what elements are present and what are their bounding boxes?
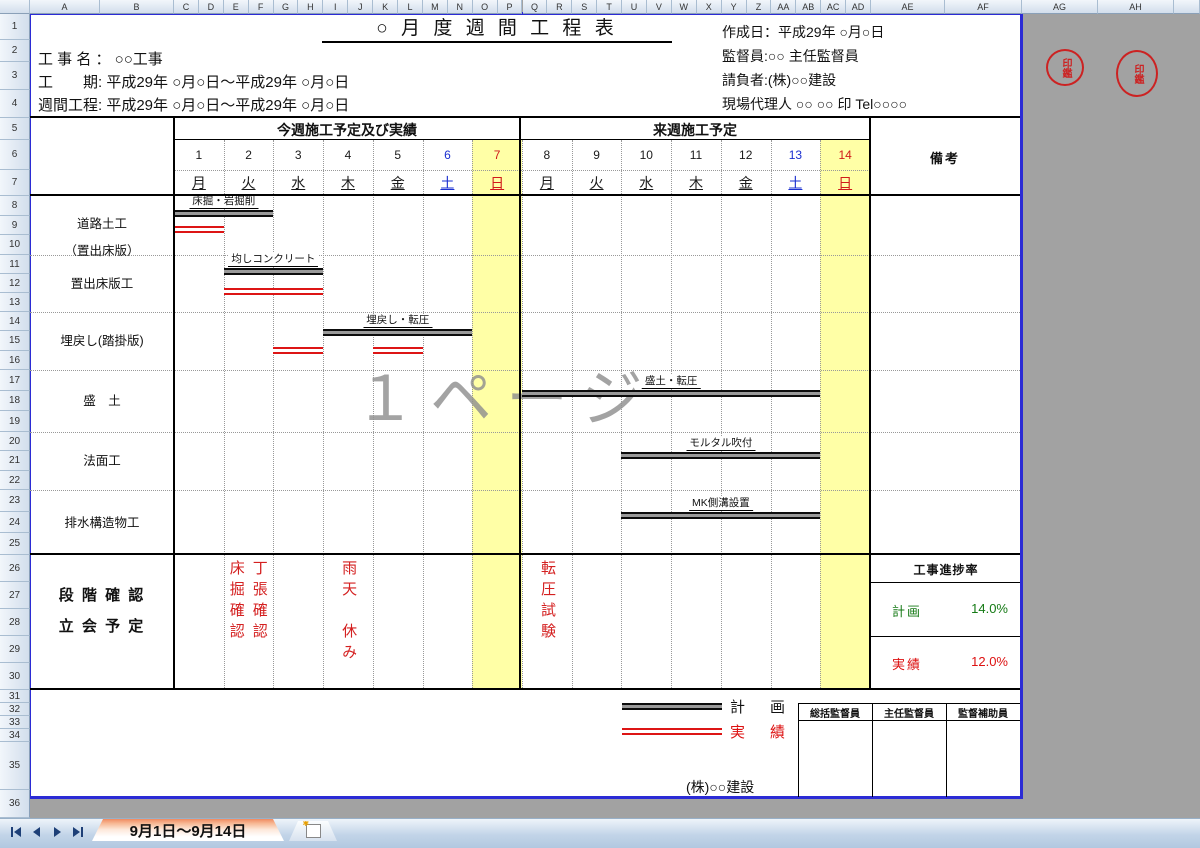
tab-scroll-last-button[interactable] bbox=[69, 823, 87, 841]
row-header-34[interactable]: 34 bbox=[0, 729, 30, 742]
stage-confirm-label-line1: 段 階 確 認 bbox=[30, 584, 174, 605]
table-rule-v bbox=[872, 703, 873, 797]
grid-dotted-vline bbox=[771, 140, 772, 690]
row-header-31[interactable]: 31 bbox=[0, 690, 30, 703]
row-header-18[interactable]: 18 bbox=[0, 391, 30, 411]
gantt-bar-actual bbox=[273, 347, 323, 354]
row-header-15[interactable]: 15 bbox=[0, 331, 30, 351]
column-header-R[interactable]: R bbox=[547, 0, 572, 14]
seal-stamp-text: 印鑑 bbox=[1060, 58, 1070, 78]
legend-plan-label: 計 画 bbox=[730, 696, 790, 717]
gantt-bar-actual bbox=[224, 288, 323, 295]
row-header-13[interactable]: 13 bbox=[0, 293, 30, 312]
column-header-AA[interactable]: AA bbox=[771, 0, 796, 14]
scroll-bar-glyph bbox=[11, 827, 13, 837]
date-cell-day2: 2 bbox=[224, 141, 274, 169]
progress-actual-label: 実績 bbox=[892, 654, 922, 673]
row-header-35[interactable]: 35 bbox=[0, 742, 30, 790]
work-item-label: 道路土工 bbox=[30, 214, 174, 234]
row-header-20[interactable]: 20 bbox=[0, 432, 30, 451]
date-cell-day4: 4 bbox=[323, 141, 373, 169]
row-header-25[interactable]: 25 bbox=[0, 533, 30, 555]
date-cell-day8: 8 bbox=[522, 141, 572, 169]
gantt-bar-label: モルタル吹付 bbox=[686, 437, 755, 451]
header-info-right-1: 監督員:○○ 主任監督員 bbox=[722, 46, 859, 66]
seal-stamp-text: 印鑑 bbox=[1132, 64, 1142, 84]
confirm-note: 雨天 休み bbox=[338, 560, 358, 688]
row-header-4[interactable]: 4 bbox=[0, 90, 30, 118]
column-header-M[interactable]: M bbox=[423, 0, 448, 14]
date-cell-day10: 10 bbox=[621, 141, 671, 169]
dow-cell-day6: 土 bbox=[423, 171, 473, 195]
supervisor-col-header: 総括監督員 bbox=[798, 704, 872, 720]
work-item-label: 排水構造物工 bbox=[30, 513, 174, 533]
remarks-header: 備考 bbox=[870, 118, 1020, 196]
dow-cell-day4: 木 bbox=[323, 171, 373, 195]
work-item-label: （置出床版） bbox=[30, 241, 174, 261]
grid-dotted-hline bbox=[30, 255, 1020, 256]
row-header-14[interactable]: 14 bbox=[0, 312, 30, 331]
gantt-bar-plan bbox=[621, 512, 820, 519]
tab-scroll-prev-button[interactable] bbox=[27, 823, 45, 841]
gantt-bar-label: 均しコンクリート bbox=[228, 253, 318, 267]
row-header-16[interactable]: 16 bbox=[0, 351, 30, 370]
row-header-19[interactable]: 19 bbox=[0, 411, 30, 432]
column-header-X[interactable]: X bbox=[697, 0, 722, 14]
row-header-36[interactable]: 36 bbox=[0, 790, 30, 818]
dow-cell-day1: 月 bbox=[174, 171, 224, 195]
row-header-23[interactable]: 23 bbox=[0, 490, 30, 512]
column-header-A[interactable]: A bbox=[30, 0, 100, 14]
progress-plan-value: 14.0% bbox=[930, 601, 1008, 616]
gantt-bar-plan bbox=[174, 210, 273, 217]
table-rule-h bbox=[798, 703, 1020, 704]
row-header-24[interactable]: 24 bbox=[0, 512, 30, 533]
triangle-left-icon bbox=[33, 827, 40, 837]
row-header-10[interactable]: 10 bbox=[0, 235, 30, 255]
header-info-left-0: 工 事 名 ： ○○工事 bbox=[38, 48, 163, 69]
legend-company: (株)○○建設 bbox=[686, 777, 754, 797]
row-header-6[interactable]: 6 bbox=[0, 140, 30, 170]
supervisor-col-header: 監督補助員 bbox=[946, 704, 1020, 720]
row-header-3[interactable]: 3 bbox=[0, 62, 30, 90]
table-rule-v bbox=[869, 116, 871, 690]
seal-stamp-icon: 印鑑 bbox=[1046, 49, 1084, 86]
tab-scroll-next-button[interactable] bbox=[48, 823, 66, 841]
table-rule-h bbox=[30, 116, 1020, 118]
column-header-T[interactable]: T bbox=[597, 0, 622, 14]
column-header-N[interactable]: N bbox=[448, 0, 473, 14]
row-header-11[interactable]: 11 bbox=[0, 255, 30, 274]
table-rule-v bbox=[798, 703, 799, 797]
page-title: ○ 月 度 週 間 工 程 表 bbox=[322, 17, 672, 43]
table-rule-v bbox=[946, 703, 947, 797]
dow-cell-day8: 月 bbox=[522, 171, 572, 195]
holiday-column-day14 bbox=[820, 140, 870, 690]
week1-header: 今週施工予定及び実績 bbox=[174, 119, 520, 140]
triangle-left-icon bbox=[14, 827, 21, 837]
stage-confirm-label-line2: 立 会 予 定 bbox=[30, 615, 174, 636]
column-header-L[interactable]: L bbox=[398, 0, 423, 14]
column-header-E[interactable]: E bbox=[224, 0, 249, 14]
sheet-tab-active[interactable]: 9月1日～9月14日 bbox=[92, 819, 284, 841]
grid-dotted-vline bbox=[323, 140, 324, 690]
tab-scroll-first-button[interactable] bbox=[6, 823, 24, 841]
row-header-1[interactable]: 1 bbox=[0, 14, 30, 40]
progress-plan-label: 計画 bbox=[892, 601, 922, 620]
work-item-label: 法面工 bbox=[30, 451, 174, 471]
row-header-32[interactable]: 32 bbox=[0, 703, 30, 716]
column-header-AB[interactable]: AB bbox=[796, 0, 821, 14]
work-item-label: 盛 土 bbox=[30, 391, 174, 411]
date-cell-day12: 12 bbox=[721, 141, 771, 169]
gantt-bar-actual bbox=[174, 226, 224, 233]
grid-dotted-vline bbox=[671, 140, 672, 690]
date-cell-day5: 5 bbox=[373, 141, 423, 169]
header-info-right-0: 作成日：平成29年 ○月○日 bbox=[722, 22, 884, 42]
row-header-7[interactable]: 7 bbox=[0, 170, 30, 196]
column-header-Q[interactable]: Q bbox=[523, 0, 548, 14]
column-header-AC[interactable]: AC bbox=[821, 0, 846, 14]
dow-cell-day9: 火 bbox=[572, 171, 622, 195]
row-header-33[interactable]: 33 bbox=[0, 716, 30, 729]
row-header-2[interactable]: 2 bbox=[0, 40, 30, 62]
dow-cell-day12: 金 bbox=[721, 171, 771, 195]
column-header-AD[interactable]: AD bbox=[846, 0, 871, 14]
row-header-8[interactable]: 8 bbox=[0, 196, 30, 216]
row-header-5[interactable]: 5 bbox=[0, 118, 30, 140]
excel-page-break-preview: ○ 月 度 週 間 工 程 表 今週施工予定及び実績 来週施工予定 備考 １ペー… bbox=[0, 0, 1200, 848]
column-header-C[interactable]: C bbox=[174, 0, 199, 14]
column-header-Y[interactable]: Y bbox=[722, 0, 747, 14]
dow-cell-day11: 木 bbox=[671, 171, 721, 195]
date-cell-day13: 13 bbox=[771, 141, 821, 169]
dow-cell-day7: 日 bbox=[472, 171, 522, 195]
date-cell-day1: 1 bbox=[174, 141, 224, 169]
sheet-tab-label: 9月1日～9月14日 bbox=[130, 820, 247, 841]
scroll-bar-glyph bbox=[81, 827, 83, 837]
table-rule-v bbox=[173, 116, 175, 690]
seal-stamp-icon: 印鑑 bbox=[1116, 50, 1158, 97]
date-cell-day14: 14 bbox=[820, 141, 870, 169]
column-header-V[interactable]: V bbox=[647, 0, 672, 14]
column-header-O[interactable]: O bbox=[473, 0, 498, 14]
date-cell-day6: 6 bbox=[423, 141, 473, 169]
row-header-30[interactable]: 30 bbox=[0, 663, 30, 690]
column-header-J[interactable]: J bbox=[348, 0, 373, 14]
dow-cell-day10: 水 bbox=[621, 171, 671, 195]
date-cell-day9: 9 bbox=[572, 141, 622, 169]
header-info-left-1: 工 期: 平成29年 ○月○日～平成29年 ○月○日 bbox=[38, 71, 349, 92]
work-item-label: 置出床版工 bbox=[30, 274, 174, 294]
row-header-28[interactable]: 28 bbox=[0, 609, 30, 636]
legend-actual-label: 実 績 bbox=[730, 721, 790, 742]
column-header-filler bbox=[1174, 0, 1200, 14]
row-header-21[interactable]: 21 bbox=[0, 451, 30, 471]
confirm-note: 丁張確認 bbox=[249, 560, 269, 688]
table-rule-h bbox=[30, 553, 1020, 555]
gantt-bar-plan bbox=[522, 390, 820, 397]
row-header-12[interactable]: 12 bbox=[0, 274, 30, 293]
progress-actual-value: 12.0% bbox=[930, 654, 1008, 669]
triangle-right-icon bbox=[73, 827, 80, 837]
column-header-D[interactable]: D bbox=[199, 0, 224, 14]
column-header-P[interactable]: P bbox=[498, 0, 523, 14]
table-rule-h bbox=[30, 194, 1020, 196]
grid-dotted-hline bbox=[30, 312, 1020, 313]
row-header-22[interactable]: 22 bbox=[0, 471, 30, 490]
row-header-9[interactable]: 9 bbox=[0, 216, 30, 235]
grid-dotted-vline bbox=[721, 140, 722, 690]
legend-plan-line bbox=[622, 703, 722, 710]
column-header-H[interactable]: H bbox=[298, 0, 323, 14]
supervisor-col-header: 主任監督員 bbox=[872, 704, 946, 720]
dow-cell-day5: 金 bbox=[373, 171, 423, 195]
legend-actual-line bbox=[622, 728, 722, 735]
header-info-right-2: 請負者:(株)○○建設 bbox=[722, 70, 836, 90]
row-header-17[interactable]: 17 bbox=[0, 370, 30, 391]
grid-dotted-hline bbox=[30, 490, 1020, 491]
column-header-F[interactable]: F bbox=[249, 0, 274, 14]
date-cell-day11: 11 bbox=[671, 141, 721, 169]
header-info-right-3: 現場代理人 ○○ ○○ 印 Tel○○○○ bbox=[722, 94, 907, 114]
dow-cell-day14: 日 bbox=[820, 171, 870, 195]
row-header-29[interactable]: 29 bbox=[0, 636, 30, 663]
column-header-B[interactable]: B bbox=[100, 0, 174, 14]
row-header-26[interactable]: 26 bbox=[0, 555, 30, 582]
work-item-label: 埋戻し(踏掛版) bbox=[30, 331, 174, 351]
triangle-right-icon bbox=[54, 827, 61, 837]
column-header-W[interactable]: W bbox=[672, 0, 697, 14]
column-header-I[interactable]: I bbox=[323, 0, 348, 14]
table-rule-h bbox=[870, 582, 1020, 583]
header-info-left-2: 週間工程: 平成29年 ○月○日～平成29年 ○月○日 bbox=[38, 94, 349, 115]
gantt-bar-label: MK側溝設置 bbox=[689, 497, 753, 511]
date-cell-day7: 7 bbox=[472, 141, 522, 169]
table-rule-h bbox=[30, 688, 1020, 690]
date-cell-day3: 3 bbox=[273, 141, 323, 169]
table-rule-v bbox=[519, 116, 521, 690]
week2-header: 来週施工予定 bbox=[520, 119, 870, 140]
column-header-K[interactable]: K bbox=[373, 0, 398, 14]
select-all-corner[interactable] bbox=[0, 0, 30, 14]
column-header-S[interactable]: S bbox=[572, 0, 597, 14]
gantt-bar-plan bbox=[621, 452, 820, 459]
table-rule-h bbox=[798, 720, 1020, 721]
dow-cell-day3: 水 bbox=[273, 171, 323, 195]
row-header-27[interactable]: 27 bbox=[0, 582, 30, 609]
insert-sheet-icon: ✱ bbox=[306, 824, 321, 838]
grid-dotted-vline bbox=[820, 140, 821, 690]
grid-dotted-vline bbox=[273, 140, 274, 690]
column-header-AG[interactable]: AG bbox=[1022, 0, 1098, 14]
gantt-bar-label: 床掘・岩掘削 bbox=[189, 195, 258, 209]
column-header-AE[interactable]: AE bbox=[871, 0, 945, 14]
gantt-bar-plan bbox=[224, 268, 323, 275]
confirm-note: 床掘確認 bbox=[226, 560, 246, 688]
table-rule-h bbox=[870, 636, 1020, 637]
column-header-U[interactable]: U bbox=[622, 0, 647, 14]
gantt-bar-label: 埋戻し・転圧 bbox=[363, 314, 432, 328]
column-header-G[interactable]: G bbox=[274, 0, 299, 14]
dow-cell-day13: 土 bbox=[771, 171, 821, 195]
grid-dotted-vline bbox=[224, 140, 225, 690]
column-header-Z[interactable]: Z bbox=[747, 0, 772, 14]
table-rule-h bbox=[174, 139, 870, 140]
column-header-AF[interactable]: AF bbox=[945, 0, 1022, 14]
column-header-AH[interactable]: AH bbox=[1098, 0, 1174, 14]
gantt-bar-label: 盛土・転圧 bbox=[642, 375, 701, 389]
confirm-note: 転圧試験 bbox=[537, 560, 557, 688]
gantt-bar-actual bbox=[373, 347, 423, 354]
dow-cell-day2: 火 bbox=[224, 171, 274, 195]
gantt-bar-plan bbox=[323, 329, 472, 336]
progress-title: 工事進捗率 bbox=[872, 556, 1020, 582]
